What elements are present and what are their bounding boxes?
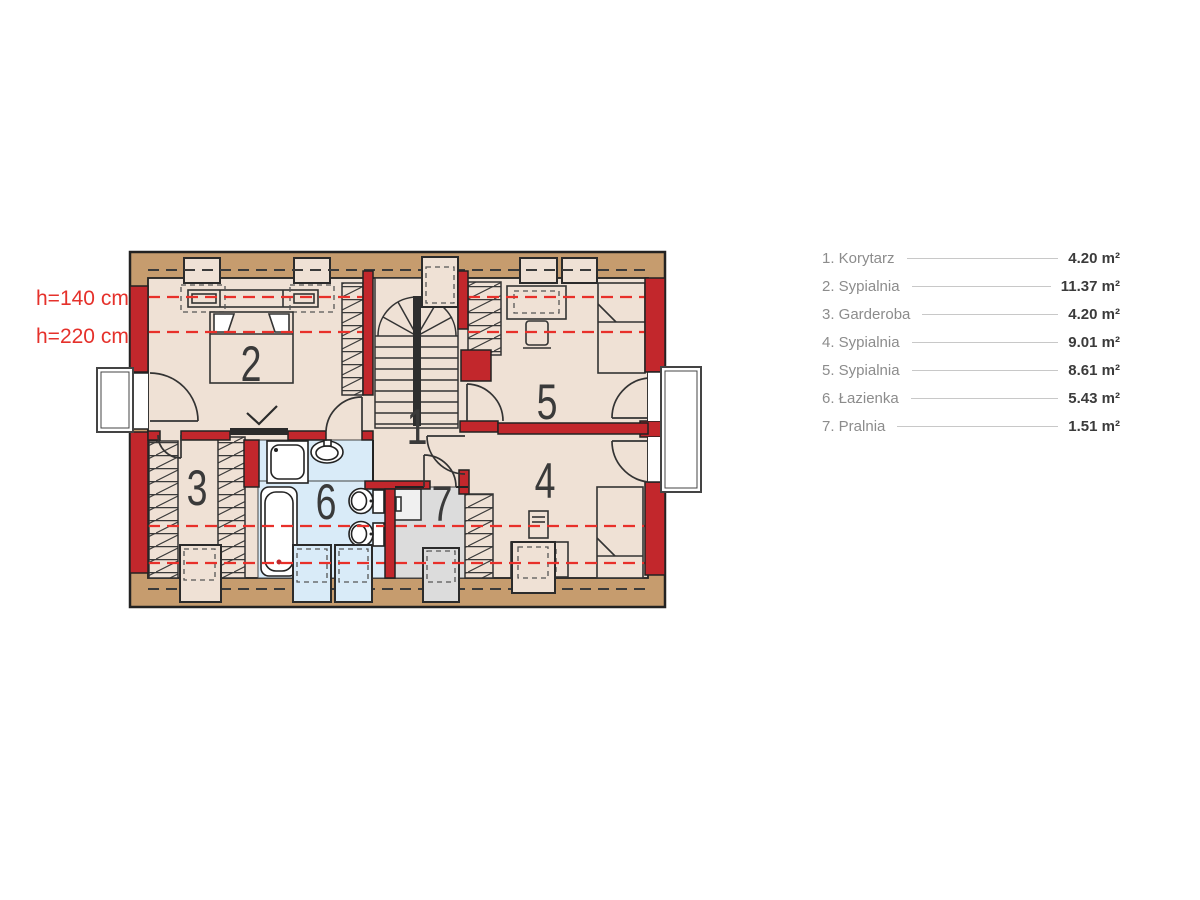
leader-line	[911, 398, 1059, 399]
stair-dormer	[422, 257, 458, 307]
legend-row: 2. Sypialnia 11.37 m²	[822, 272, 1120, 300]
wall	[458, 271, 468, 329]
wall	[130, 432, 148, 573]
bathtub-drain	[277, 560, 282, 565]
wall	[244, 440, 259, 487]
room-number-1: 1	[407, 400, 428, 455]
legend-room-label: 7. Pralnia	[822, 418, 885, 435]
tv-unit	[230, 428, 288, 435]
room-number-4: 4	[535, 454, 556, 509]
legend-room-area: 9.01 m²	[1068, 334, 1120, 351]
room-legend: 1. Korytarz 4.20 m² 2. Sypialnia 11.37 m…	[822, 244, 1120, 440]
cabinet	[529, 511, 548, 538]
legend-row: 7. Pralnia 1.51 m²	[822, 412, 1120, 440]
legend-room-label: 6. Łazienka	[822, 390, 899, 407]
leader-line	[912, 286, 1051, 287]
wall	[498, 423, 648, 434]
room-number-5: 5	[537, 375, 558, 430]
wall	[645, 278, 665, 372]
sink-tap	[324, 440, 331, 446]
legend-room-area: 11.37 m²	[1061, 278, 1120, 295]
leader-line	[912, 342, 1059, 343]
legend-room-label: 2. Sypialnia	[822, 278, 900, 295]
room-number-3: 3	[187, 461, 208, 516]
legend-row: 5. Sypialnia 8.61 m²	[822, 356, 1120, 384]
leader-line	[912, 370, 1059, 371]
legend-room-area: 4.20 m²	[1068, 250, 1120, 267]
legend-room-area: 5.43 m²	[1068, 390, 1120, 407]
room-number-2: 2	[241, 337, 262, 392]
dormer	[335, 545, 372, 602]
legend-room-area: 1.51 m²	[1068, 418, 1120, 435]
wall	[461, 350, 491, 381]
knee-wall-hatch	[465, 494, 493, 578]
wall	[385, 489, 395, 578]
floor-plan-drawing: 1 2 3 4 5 6 7	[0, 0, 1200, 900]
left-window	[97, 368, 148, 432]
wall	[288, 431, 326, 440]
laundry-fixtures	[394, 489, 421, 520]
single-bed	[597, 487, 643, 578]
wall	[460, 421, 498, 432]
legend-room-label: 4. Sypialnia	[822, 334, 900, 351]
room-number-7: 7	[432, 477, 453, 532]
leader-line	[897, 426, 1058, 427]
wardrobe-hatch	[218, 437, 245, 578]
wall	[645, 482, 665, 575]
legend-room-area: 4.20 m²	[1068, 306, 1120, 323]
legend-room-label: 3. Garderoba	[822, 306, 910, 323]
knee-wall-hatch	[468, 282, 501, 355]
legend-room-label: 5. Sypialnia	[822, 362, 900, 379]
legend-room-area: 8.61 m²	[1068, 362, 1120, 379]
legend-row: 3. Garderoba 4.20 m²	[822, 300, 1120, 328]
leader-line	[922, 314, 1058, 315]
leader-line	[907, 258, 1059, 259]
legend-row: 4. Sypialnia 9.01 m²	[822, 328, 1120, 356]
wall	[362, 431, 373, 440]
wall	[363, 271, 373, 395]
legend-row: 6. Łazienka 5.43 m²	[822, 384, 1120, 412]
dormer	[423, 548, 459, 602]
legend-room-label: 1. Korytarz	[822, 250, 895, 267]
room-number-6: 6	[316, 475, 337, 530]
legend-row: 1. Korytarz 4.20 m²	[822, 244, 1120, 272]
wall	[130, 286, 148, 372]
floor-plan-page: h=140 cm h=220 cm	[0, 0, 1200, 900]
wardrobe-hatch	[149, 441, 178, 578]
dormer	[293, 545, 331, 602]
knee-wall-hatch	[342, 283, 363, 395]
toilet	[349, 489, 384, 514]
sideboard	[188, 290, 318, 307]
wall	[181, 431, 230, 440]
